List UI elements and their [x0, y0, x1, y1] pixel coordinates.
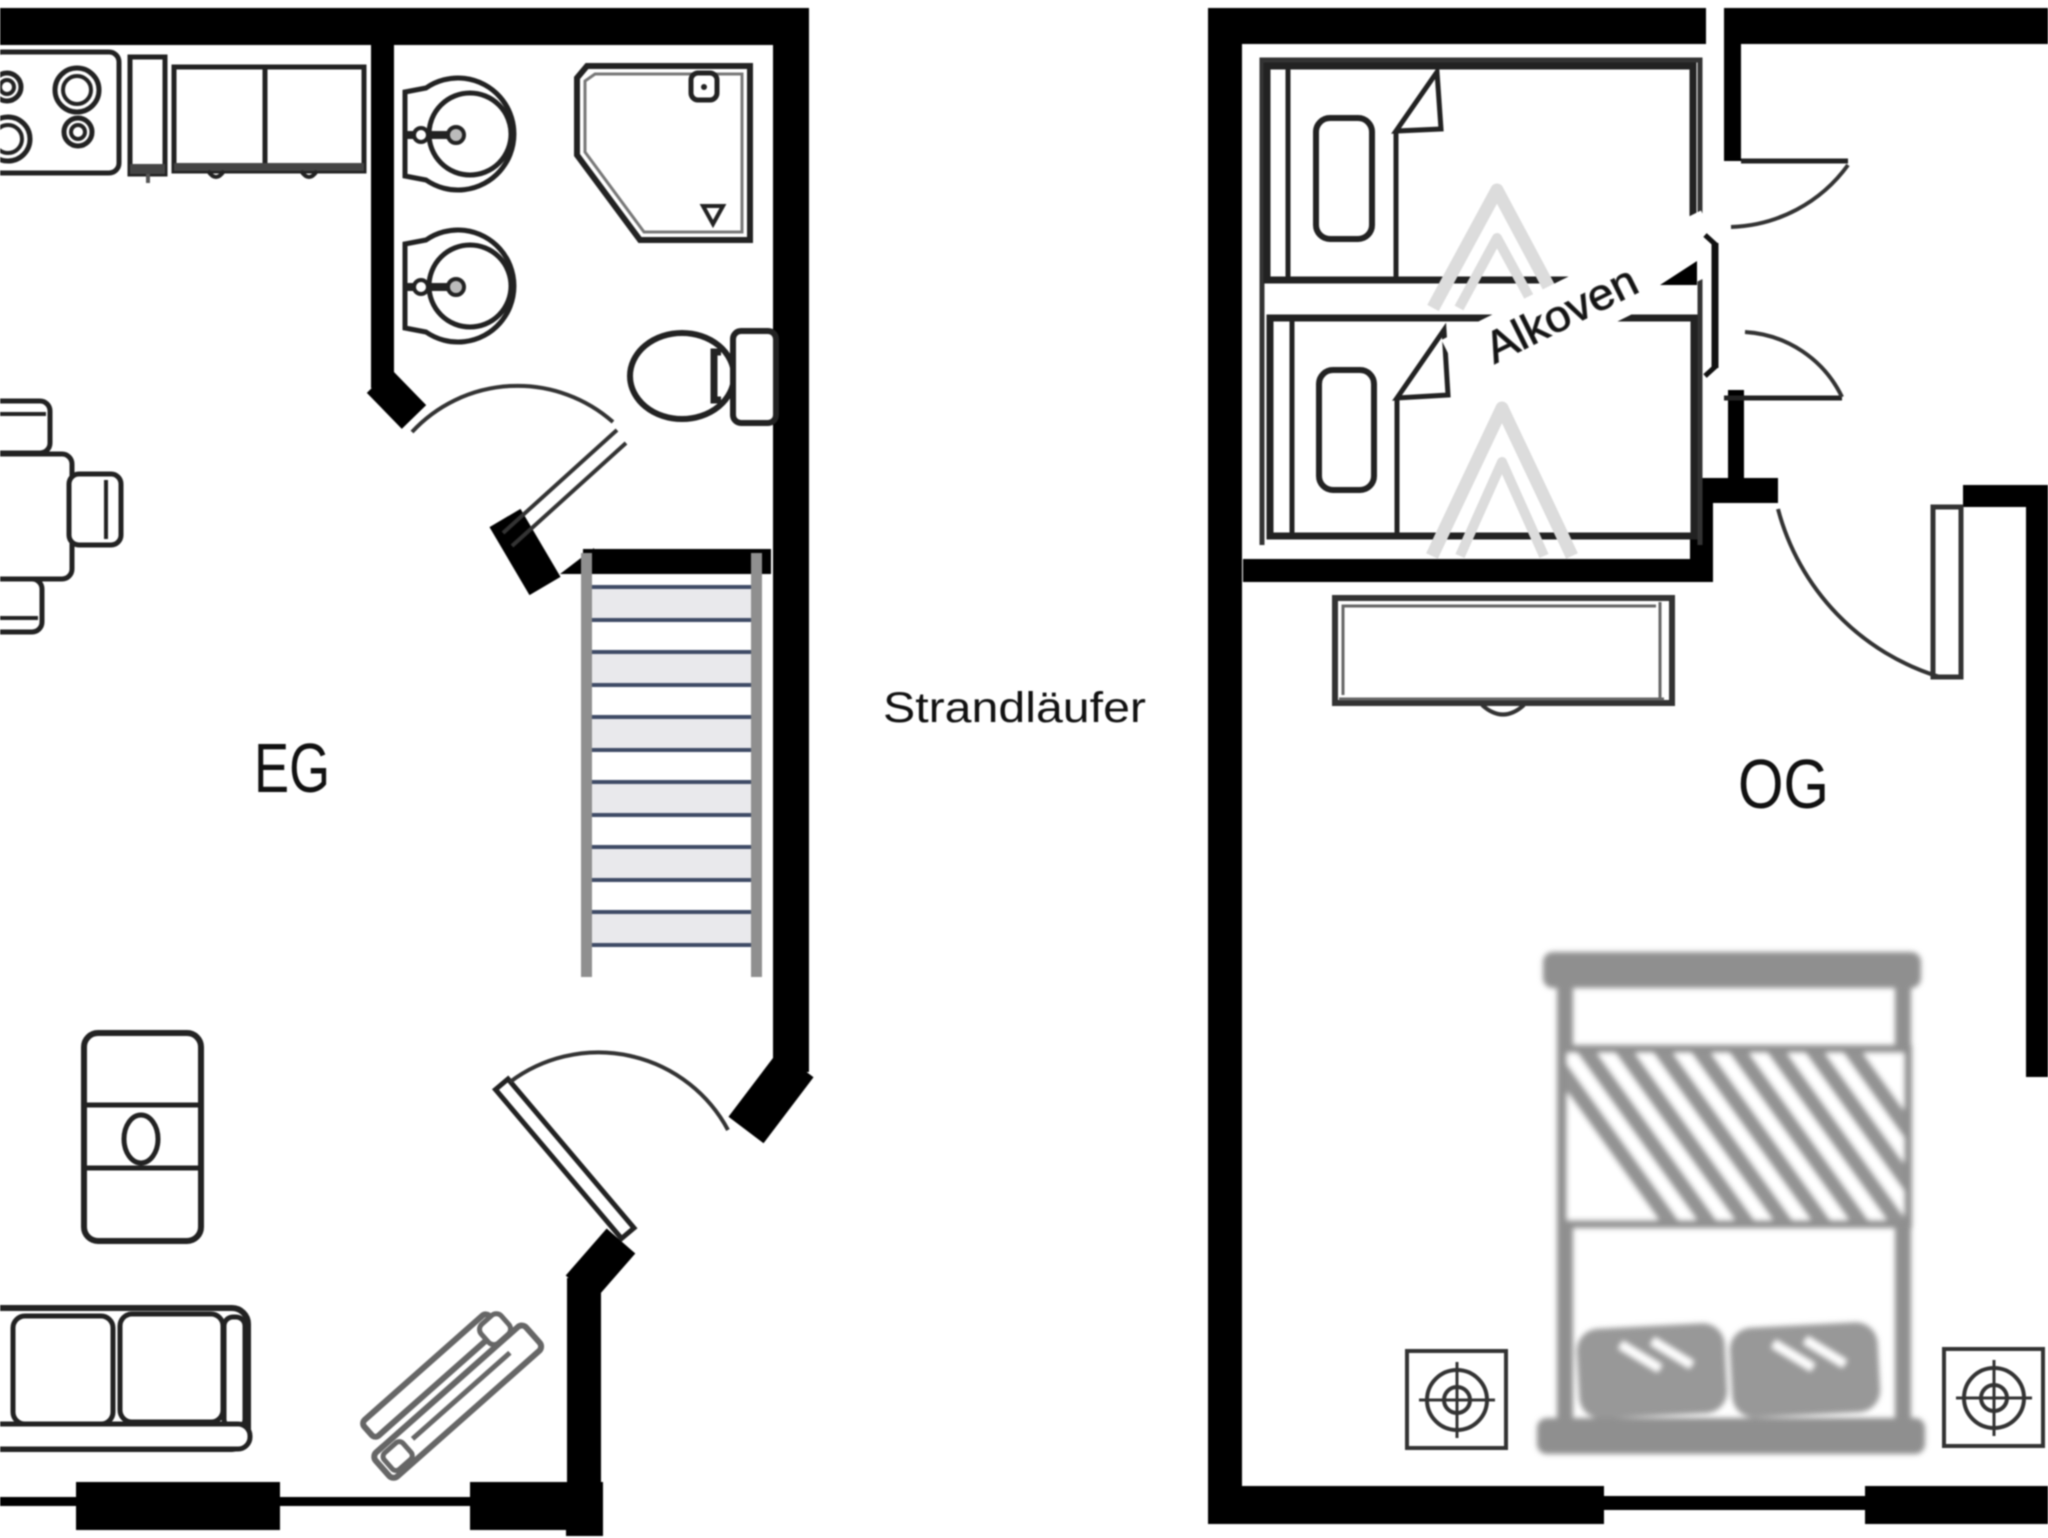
- svg-text:Strandläufer: Strandläufer: [883, 684, 1146, 732]
- svg-text:EG: EG: [254, 729, 330, 807]
- svg-text:OG: OG: [1738, 745, 1829, 823]
